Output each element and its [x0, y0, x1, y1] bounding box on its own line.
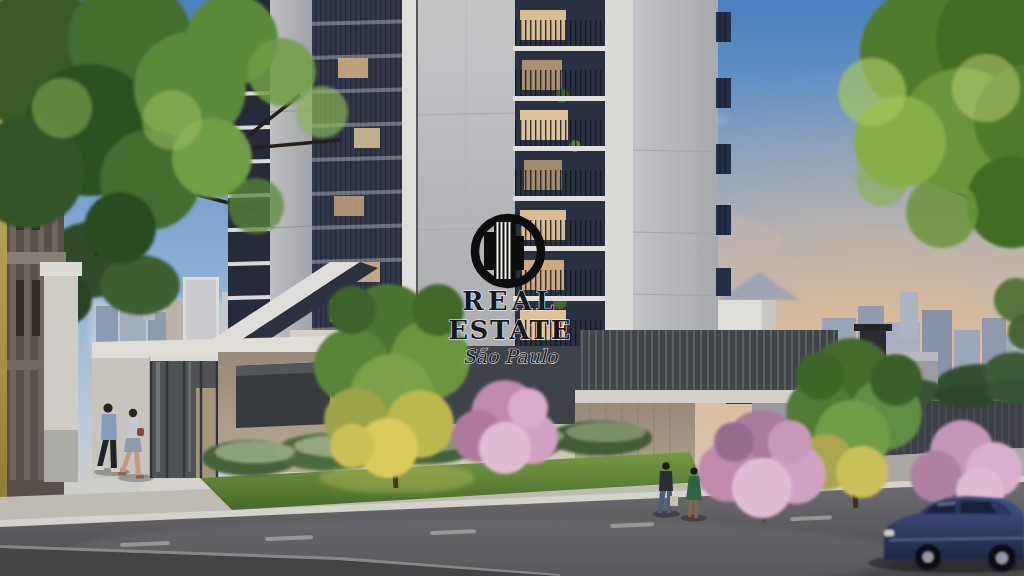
real-estate-render: REAL ESTATE São Paulo: [0, 0, 1024, 576]
scene-artwork: [0, 0, 1024, 576]
vignette: [0, 0, 1024, 576]
